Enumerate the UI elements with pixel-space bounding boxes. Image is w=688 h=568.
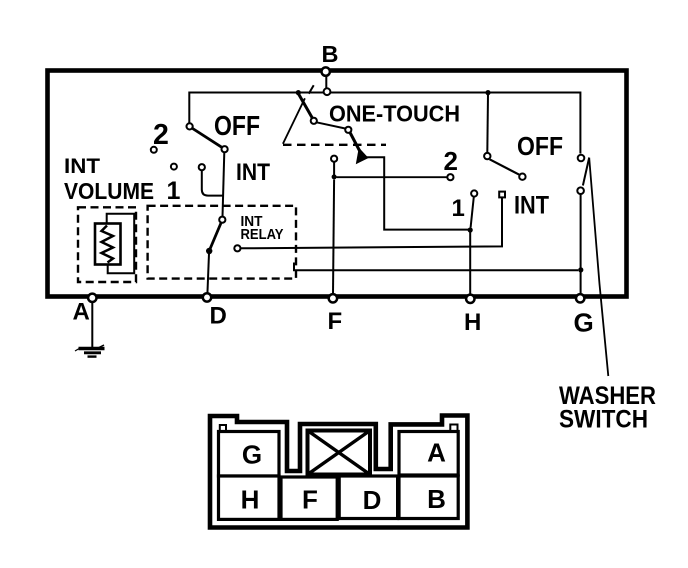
- svg-text:A: A: [73, 299, 90, 326]
- svg-text:INT: INT: [64, 154, 100, 178]
- svg-text:INT: INT: [514, 191, 549, 219]
- svg-text:SWITCH: SWITCH: [559, 405, 648, 433]
- svg-text:F: F: [328, 308, 343, 335]
- svg-text:2: 2: [153, 119, 169, 151]
- svg-text:B: B: [322, 41, 339, 67]
- svg-text:G: G: [574, 307, 594, 337]
- svg-text:D: D: [210, 303, 227, 330]
- svg-text:1: 1: [452, 195, 465, 222]
- svg-text:VOLUME: VOLUME: [64, 178, 154, 204]
- svg-text:B: B: [427, 484, 446, 514]
- svg-text:G: G: [242, 439, 262, 469]
- svg-text:D: D: [363, 485, 382, 515]
- svg-text:H: H: [464, 309, 481, 336]
- svg-text:OFF: OFF: [214, 110, 260, 141]
- svg-text:1: 1: [167, 177, 181, 205]
- svg-text:OFF: OFF: [517, 131, 563, 161]
- svg-text:ONE-TOUCH: ONE-TOUCH: [329, 100, 460, 126]
- svg-text:A: A: [427, 437, 446, 467]
- svg-text:H: H: [241, 484, 260, 514]
- svg-text:RELAY: RELAY: [241, 227, 284, 243]
- svg-text:F: F: [302, 484, 318, 514]
- svg-text:2: 2: [444, 146, 458, 176]
- svg-text:INT: INT: [236, 159, 270, 186]
